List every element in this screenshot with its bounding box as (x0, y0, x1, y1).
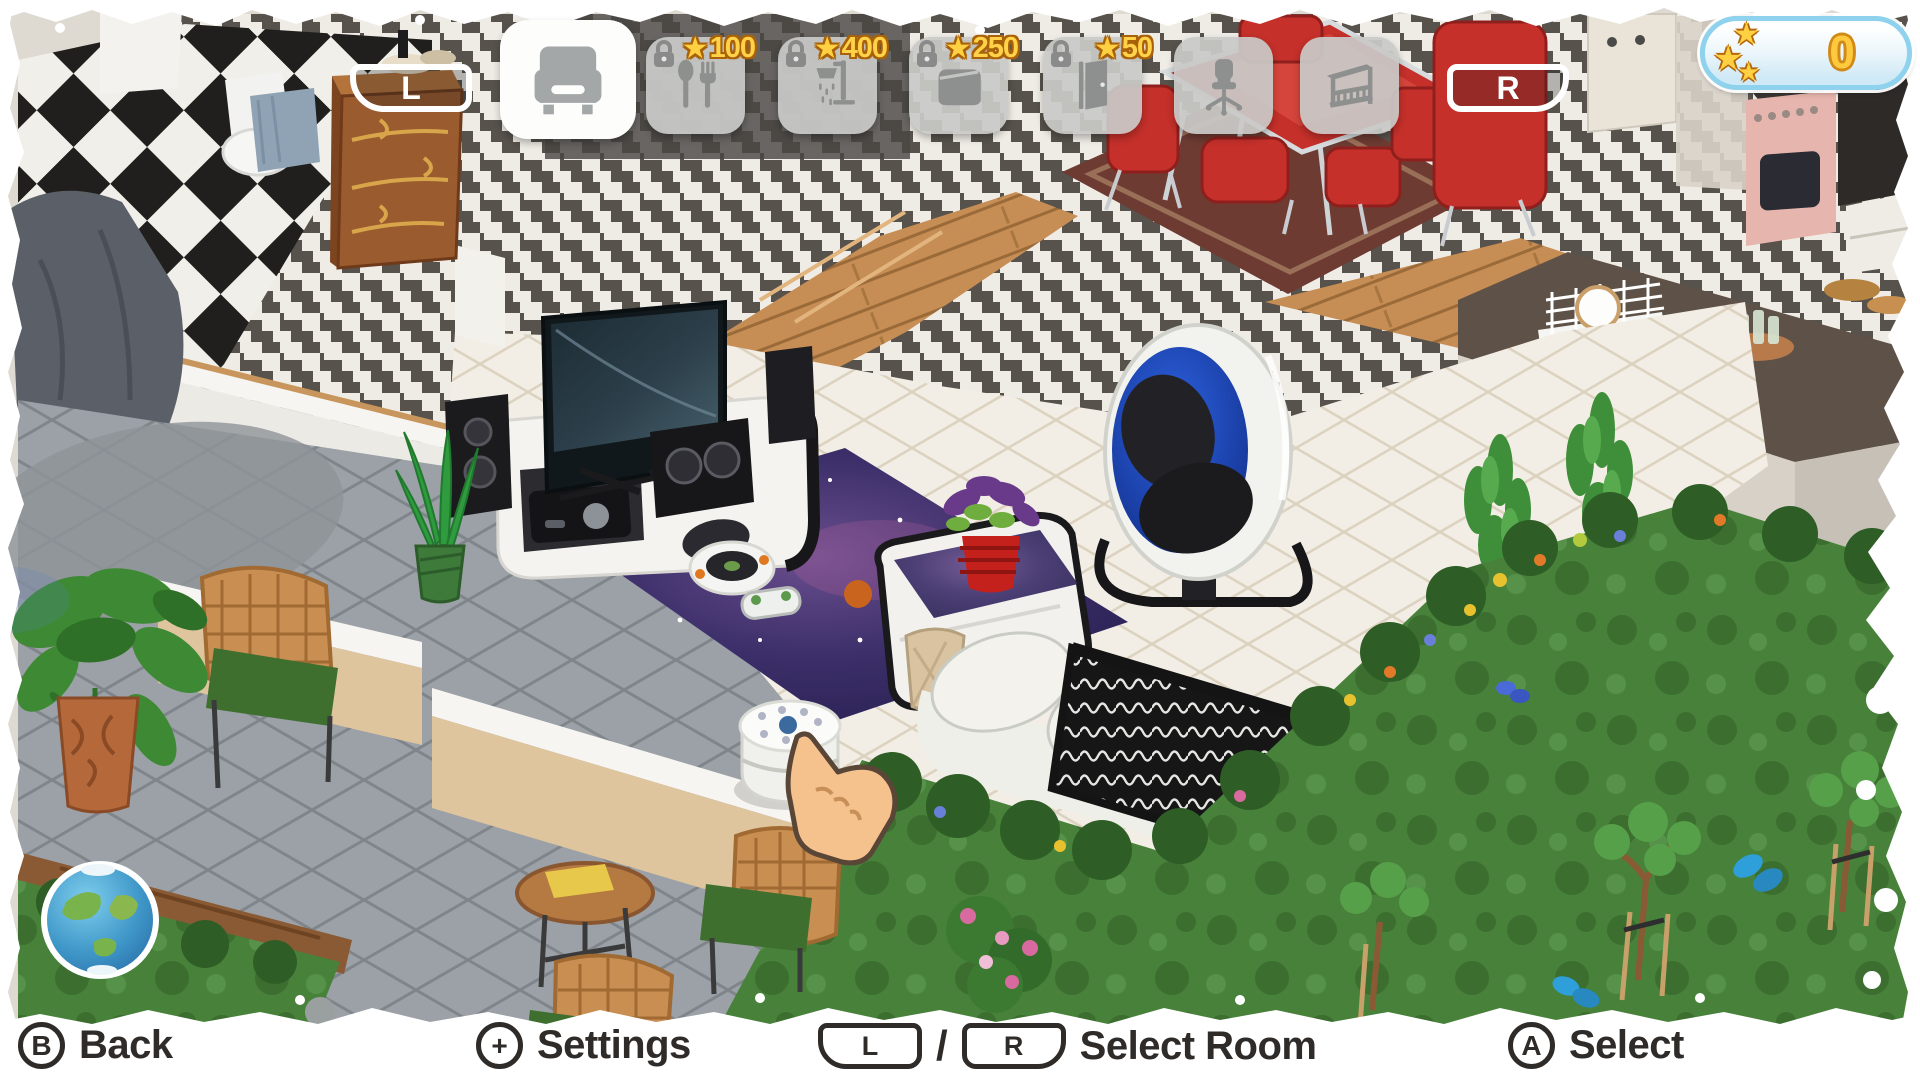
office-chair-icon (1192, 54, 1256, 118)
star-balance-pill: ★ ★ ★ 0 (1700, 16, 1912, 90)
tab-cost: ★ 50 (1094, 31, 1152, 66)
tab-cost: ★ 100 (682, 31, 755, 66)
wall-corner-white (100, 8, 182, 94)
lock-icon (914, 40, 940, 70)
tab-office[interactable] (1174, 37, 1273, 134)
tab-living-room[interactable] (500, 20, 636, 139)
left-shoulder-button[interactable]: L (350, 64, 472, 112)
tab-cost: ★ 400 (814, 31, 887, 66)
star-icon: ★ (682, 31, 709, 66)
game-screen: L ★ 100 (0, 0, 1920, 1080)
tab-hallway[interactable]: ★ 50 (1043, 37, 1142, 134)
armchair-icon (524, 36, 612, 124)
b-button[interactable]: B (18, 1022, 65, 1069)
lock-icon (1048, 40, 1074, 70)
tab-cost: ★ 250 (945, 31, 1018, 66)
world-map-button[interactable] (38, 858, 162, 982)
globe-icon (38, 858, 162, 982)
center-speaker[interactable] (650, 418, 754, 518)
tab-bathroom[interactable]: ★ 400 (778, 37, 877, 134)
right-speaker[interactable] (765, 346, 816, 444)
tower-speaker[interactable] (445, 394, 512, 518)
lock-icon (783, 40, 809, 70)
left-shoulder-label: L (401, 70, 421, 107)
a-button[interactable]: A (1508, 1022, 1555, 1069)
room-scene (0, 0, 1920, 1080)
plus-button[interactable]: + (476, 1022, 523, 1069)
right-shoulder-button[interactable]: R (1447, 64, 1569, 112)
star-icon: ★ (1094, 31, 1121, 66)
right-shoulder-label: R (1496, 70, 1519, 107)
r-key[interactable]: R (962, 1023, 1066, 1069)
l-key[interactable]: L (818, 1023, 922, 1069)
apple (844, 580, 872, 608)
cutting-board (1824, 279, 1880, 301)
tab-dining-room[interactable]: ★ 100 (646, 37, 745, 134)
star-balance-value: 0 (1795, 25, 1889, 79)
balcony-icon (1318, 54, 1382, 118)
tab-balcony[interactable] (1300, 37, 1399, 134)
star-icon: ★ (814, 31, 841, 66)
tab-bedroom[interactable]: ★ 250 (909, 37, 1008, 134)
stars-cluster-icon: ★ ★ ★ (1715, 23, 1779, 87)
wall-endcap (455, 245, 505, 348)
cutting-board (1867, 296, 1913, 314)
lock-icon (651, 40, 677, 70)
star-icon: ★ (945, 31, 972, 66)
